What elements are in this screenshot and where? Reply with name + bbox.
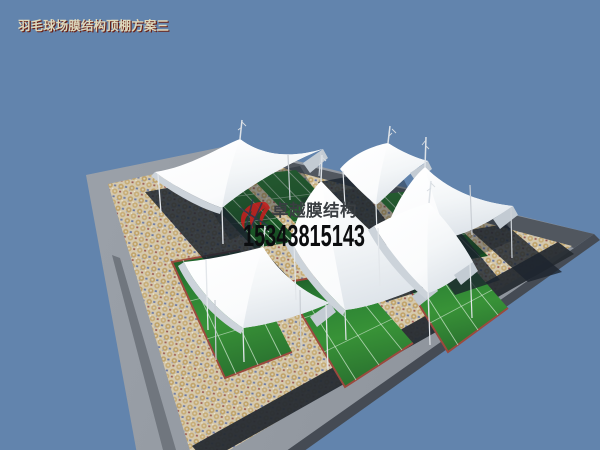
- svg-text:羽毛球场膜结构顶棚方案三: 羽毛球场膜结构顶棚方案三: [18, 18, 169, 33]
- svg-text:15343815143: 15343815143: [243, 218, 365, 253]
- svg-text:卓越膜结构: 卓越膜结构: [272, 200, 357, 220]
